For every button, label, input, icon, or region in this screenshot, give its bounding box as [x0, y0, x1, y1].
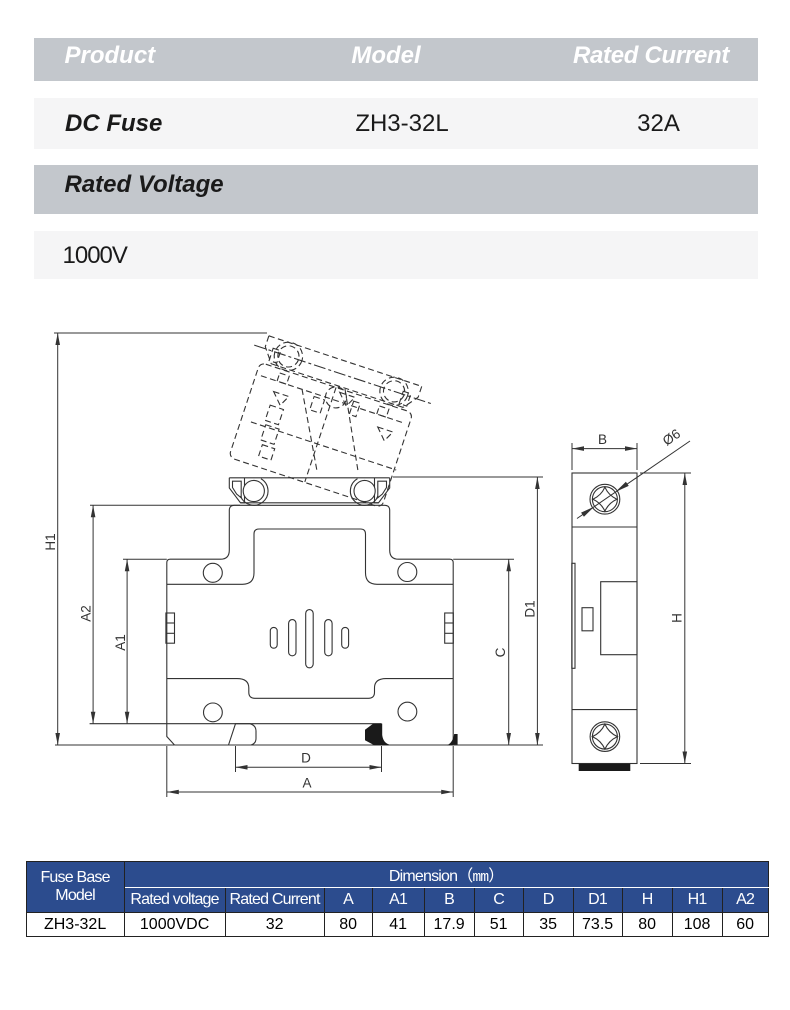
svg-text:A2: A2 — [79, 605, 94, 622]
svg-text:Ø6: Ø6 — [660, 426, 683, 449]
svg-text:H: H — [670, 613, 685, 623]
svg-text:H1: H1 — [43, 533, 58, 550]
svg-text:B: B — [598, 432, 607, 447]
svg-text:A: A — [302, 776, 311, 791]
svg-text:D: D — [301, 751, 311, 766]
svg-text:A1: A1 — [113, 634, 128, 651]
svg-text:D1: D1 — [523, 600, 538, 617]
svg-text:C: C — [493, 647, 508, 657]
